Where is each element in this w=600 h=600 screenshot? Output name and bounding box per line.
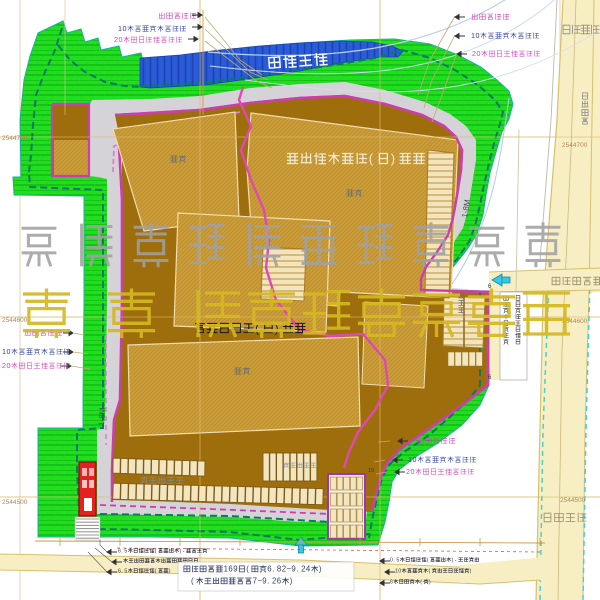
svg-text:6: 6: [267, 565, 271, 574]
svg-text:(: (: [155, 569, 157, 575]
svg-text:6: 6: [390, 580, 393, 586]
svg-text:.: .: [393, 558, 394, 564]
svg-text:.: .: [121, 569, 122, 575]
svg-text:9: 9: [233, 565, 237, 574]
svg-text:2: 2: [301, 565, 305, 574]
svg-text:6: 6: [228, 565, 232, 574]
svg-text:): ): [290, 577, 293, 586]
svg-text:0: 0: [476, 31, 480, 40]
svg-text:5: 5: [396, 558, 399, 564]
svg-text:2544500: 2544500: [2, 499, 28, 506]
svg-text:(: (: [427, 558, 429, 564]
svg-text:): ): [169, 569, 171, 575]
svg-text:10: 10: [368, 468, 374, 474]
svg-text:(: (: [429, 569, 431, 575]
svg-text:): ): [180, 549, 182, 555]
svg-text:): ): [470, 569, 472, 575]
svg-text:): ): [452, 558, 454, 564]
svg-text:2544600: 2544600: [2, 317, 28, 324]
svg-text:(: (: [420, 580, 422, 586]
svg-text:5: 5: [124, 569, 127, 575]
svg-text:-: -: [455, 558, 457, 564]
svg-text:0: 0: [7, 361, 11, 370]
svg-text:0: 0: [477, 49, 481, 58]
svg-text:2544500: 2544500: [560, 497, 586, 504]
svg-text:7: 7: [253, 577, 257, 586]
svg-text:1-8M: 1-8M: [97, 407, 107, 426]
svg-text:.: .: [296, 565, 298, 574]
svg-text:): ): [391, 151, 395, 166]
svg-text:2: 2: [282, 565, 286, 574]
svg-text:6: 6: [277, 577, 281, 586]
svg-text:0: 0: [413, 455, 417, 464]
svg-text:5: 5: [124, 549, 127, 555]
svg-text:0: 0: [398, 569, 401, 575]
svg-text:(: (: [191, 577, 194, 586]
svg-text:9: 9: [262, 577, 266, 586]
svg-text:(: (: [369, 151, 374, 166]
svg-text:8: 8: [277, 565, 281, 574]
svg-text:.: .: [121, 549, 122, 555]
svg-text:0: 0: [411, 467, 415, 476]
svg-text:1: 1: [118, 24, 122, 33]
svg-text:2: 2: [272, 577, 276, 586]
svg-text:0: 0: [119, 35, 123, 44]
svg-text:): ): [319, 565, 322, 574]
svg-text:2544700: 2544700: [562, 142, 588, 149]
svg-text:2544700: 2544700: [2, 135, 28, 142]
svg-text:2: 2: [472, 49, 476, 58]
svg-text:.: .: [267, 577, 269, 586]
svg-text:2: 2: [2, 361, 6, 370]
svg-text:0: 0: [7, 347, 11, 356]
svg-text:-: -: [183, 549, 185, 555]
svg-text:9: 9: [291, 565, 295, 574]
svg-text:1: 1: [471, 31, 475, 40]
svg-text:1: 1: [2, 347, 6, 356]
svg-text:2: 2: [114, 35, 118, 44]
svg-text:.: .: [272, 565, 274, 574]
svg-text:1: 1: [224, 565, 228, 574]
svg-text:): ): [429, 580, 431, 586]
svg-text:0: 0: [123, 24, 127, 33]
svg-text:2: 2: [406, 467, 410, 476]
svg-text:(: (: [246, 565, 249, 574]
svg-text:4: 4: [306, 565, 311, 574]
svg-text:1: 1: [408, 455, 412, 464]
svg-text:(: (: [155, 549, 157, 555]
